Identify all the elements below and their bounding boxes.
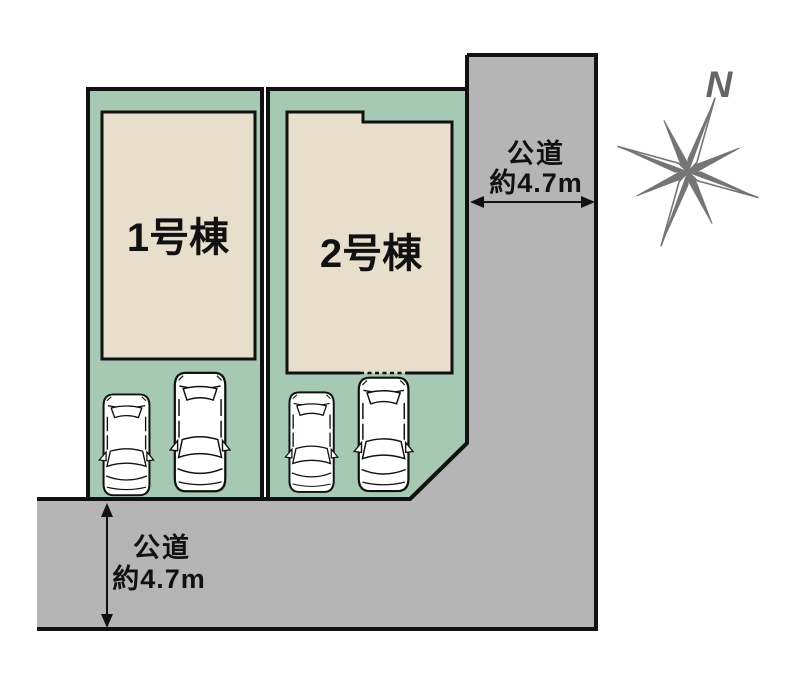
compass-rose-icon xyxy=(591,72,786,272)
road-bottom-width: 約4.7m xyxy=(112,563,206,594)
car-icon xyxy=(170,373,230,491)
site-plan-drawing: 1号棟 2号棟 公道 約4.7m 公道 約4.7m xyxy=(0,0,800,682)
road-bottom-name: 公道 xyxy=(133,532,191,563)
car-icon xyxy=(354,378,413,491)
building-2-label: 2号棟 xyxy=(320,232,423,276)
road-right-name: 公道 xyxy=(507,138,565,169)
site-plan: 1号棟 2号棟 公道 約4.7m 公道 約4.7m xyxy=(0,0,800,682)
car-icon xyxy=(285,392,337,492)
compass-north-label: N xyxy=(706,64,734,105)
building-1-label: 1号棟 xyxy=(127,216,230,260)
car-icon xyxy=(99,394,153,495)
road-right-width: 約4.7m xyxy=(489,167,583,198)
